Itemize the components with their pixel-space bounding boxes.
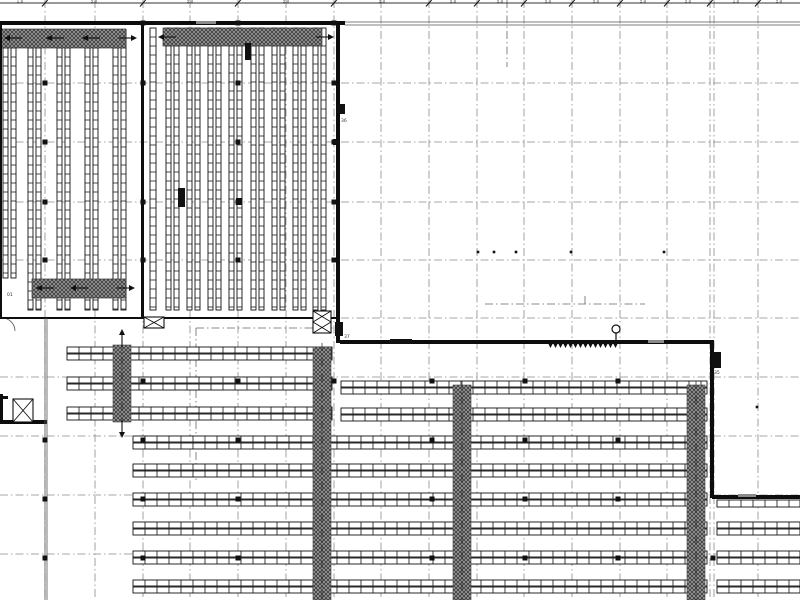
black-door-marker [245,43,251,60]
rack-ladder-outline [208,28,213,310]
dimension-label: 5,0 [187,0,194,4]
hatched-band [32,279,135,298]
rack-row [133,493,707,506]
structural-column-dot [141,21,146,26]
structural-column-dot [236,497,241,502]
rack-ladder-rail [216,28,221,310]
structural-column-dot [430,497,435,502]
rack-ladder-rail [280,28,285,310]
rack-row-rail [717,529,800,535]
rack-ladder-rail [259,28,264,310]
dimension-label: 5,0 [379,0,386,4]
small-dot [756,406,759,409]
rack-ladder-outline [293,28,298,310]
structural-column-dot [430,438,435,443]
rack-ladder-rail [195,28,200,310]
rack-ladder-outline [216,28,221,310]
rack-row-rail [133,464,707,470]
rack-ladder-outline [187,28,192,310]
xbox-frame [313,311,331,333]
dimension-label: 5,0 [283,0,290,4]
structural-column-dot [523,438,528,443]
dimension-label: 5,0 [450,0,457,4]
xbox-symbol [144,317,164,328]
black-door-marker [155,21,179,25]
rack-row-rail [67,354,332,360]
rack-ladder-rail [301,28,306,310]
structural-column-dot [43,497,48,502]
structural-column-dot [332,81,337,86]
rack-ladder-rail [237,28,242,310]
structural-column-dot [43,556,48,561]
dimension-label: 5,0 [545,0,552,4]
rack-ladder-rail [187,28,192,310]
rack-ladder-outline [259,28,264,310]
rack-ladder-rail [85,30,90,310]
gray-wall-label [196,21,216,24]
rack-ladder-rail [57,30,62,310]
dimension-label: 1,0 [733,0,740,4]
rack-row-rail [133,443,707,449]
structural-column-dot [523,497,528,502]
rack-ladder-rail [321,28,326,310]
structural-column-dot [236,379,241,384]
small-dot [663,251,666,254]
rack-ladder-outline [321,28,326,310]
structural-column-dot [43,438,48,443]
rack-row-rail [717,558,800,564]
structural-column-dot [43,81,48,86]
flow-arrow-head [129,285,135,291]
rack-ladder-outline [237,28,242,310]
rack-ladder-outline [313,28,318,310]
black-door-marker [390,339,412,344]
rack-row-rail [133,500,707,506]
rack-ladder-outline [251,28,256,310]
rack-ladder-outline [65,30,70,310]
structural-column-dot [430,556,435,561]
structural-column-dot [236,438,241,443]
rack-row-rail [67,407,332,413]
structural-column-dot [236,556,241,561]
rack-row-rail [717,580,800,586]
wall-block-divider [141,23,144,318]
rack-ladder-rail [166,28,171,310]
rack-ladder-outline [195,28,200,310]
gray-wall-label [738,494,756,497]
rack-ladder-rail [229,28,234,310]
rack-ladder-outline [11,30,16,278]
black-door-marker [712,352,721,368]
dimension-label: 5,0 [776,0,783,4]
structural-column-dot [236,81,241,86]
gate-circle-symbol [612,325,620,333]
rack-row [67,377,332,390]
rack-row-rail [717,587,800,593]
rack-ladder-outline [28,30,33,310]
flow-arrow-head [328,34,334,40]
rack-row-rail [717,500,800,507]
door-marker-label: 36 [341,118,347,124]
annotation-text: 01 [7,292,13,298]
structural-column-dot [616,556,621,561]
rack-ladder-rail [293,28,298,310]
rack-row-rail [133,551,707,557]
rack-ladder-rail [3,30,8,278]
rack-row [133,580,707,593]
vertical-racks-layer [3,28,326,310]
flow-arrow-head [131,35,137,41]
hatched-band-area [163,28,322,46]
rack-row-rail [67,414,332,420]
rack-row [67,407,332,420]
rack-ladder-rail [272,28,277,310]
dimension-label: 5,0 [497,0,504,4]
rack-ladder-outline [85,30,90,310]
rack-ladder-outline [229,28,234,310]
rack-ladder-rail [28,30,33,310]
rack-ladder-rail [174,28,179,310]
dock-layer [548,325,620,348]
dimension-label: 5,0 [640,0,647,4]
flow-arrow-head [158,34,164,40]
floor-plan-viewport: 1,05,05,05,05,05,05,05,05,05,05,01,05,03… [0,0,800,600]
rack-row-rail [67,384,332,390]
rack-row [717,551,800,564]
wall-midblock-east [336,23,340,343]
small-dot [493,251,496,254]
structural-column-dot [711,556,716,561]
rack-ladder-rail [121,30,126,310]
structural-column-dot [236,21,241,26]
structural-column-dot [141,497,146,502]
black-door-marker [335,322,343,336]
dimension-label: 5,0 [593,0,600,4]
rack-row-rail [341,388,707,394]
dimension-label: 1,0 [17,0,24,4]
rack-ladder-outline [174,28,179,310]
structural-column-dot [430,379,435,384]
rack-ladder-rail [150,28,156,310]
structural-column-dot [236,140,241,145]
rack-ladder-rail [313,28,318,310]
rack-row [717,500,800,507]
xbox-symbol [313,311,331,333]
hatched-band [0,29,137,48]
structural-column-dot [236,258,241,263]
tunnel-arrow-up-head [119,329,125,335]
black-door-marker [337,104,345,114]
rack-row [717,522,800,535]
rack-row-rail [717,522,800,528]
dimension-label: 5,0 [685,0,692,4]
rack-ladder-outline [166,28,171,310]
structural-column-dot [141,379,146,384]
rack-row-rail [133,471,707,477]
floor-plan-canvas: 1,05,05,05,05,05,05,05,05,05,05,01,05,03… [0,0,800,600]
rack-row-rail [341,415,707,421]
rack-ladder-outline [121,30,126,310]
structural-column-dot [616,438,621,443]
texts-layer: 01 [7,292,13,298]
structural-column-dot [332,258,337,263]
structural-column-dot [332,379,337,384]
rack-ladder-outline [57,30,62,310]
structural-column-dot [332,200,337,205]
rack-row-rail [133,587,707,593]
rack-row [67,347,332,360]
structural-column-dot [141,438,146,443]
xbox-layer [13,311,331,422]
rack-row [133,522,707,535]
structural-column-dot [141,556,146,561]
structural-column-dot [236,200,241,205]
rack-row-rail [133,529,707,535]
rack-ladder-rail [36,30,41,310]
small-dot [477,251,480,254]
rack-ladder-rail [93,30,98,310]
wall-upper-hall-south [0,317,340,319]
rack-row-rail [717,551,800,557]
rack-ladder-outline [93,30,98,310]
rack-ladder-outline [36,30,41,310]
rack-ladder-outline [301,28,306,310]
dimension-layer: 1,05,05,05,05,05,05,05,05,05,05,01,05,0 [0,0,800,7]
structural-column-dot [141,200,146,205]
rack-row [133,551,707,564]
rack-ladder-outline [272,28,277,310]
door-swing-arc [2,318,15,331]
rack-ladder-outline [113,30,118,310]
small-dot [515,251,518,254]
wall-shaft-west [0,394,3,424]
door-marker-label: 37 [344,334,350,340]
rack-row-rail [133,580,707,586]
rack-row-rail [133,493,707,499]
rack-ladder-outline [150,28,156,310]
structural-column-dot [43,200,48,205]
tunnel-arrow-down-head [119,432,125,438]
hatched-column [687,381,705,600]
structural-column-dot [332,21,337,26]
rack-ladder-rail [11,30,16,278]
structural-column-dot [141,81,146,86]
rack-row-rail [133,558,707,564]
rack-row-rail [67,377,332,383]
structural-column-dot [332,140,337,145]
wall-left [0,23,2,319]
rack-ladder-outline [280,28,285,310]
structural-column-dot [141,258,146,263]
gray-wall-label [648,340,664,343]
rack-row-rail [67,347,332,353]
dimension-label: 5,0 [91,0,98,4]
door-marker-label: 35 [714,370,720,376]
structural-column-dot [43,140,48,145]
structural-column-dot [523,556,528,561]
small-dot [570,251,573,254]
grid-layer [0,0,800,600]
rack-ladder-outline [3,30,8,278]
hatched-column [453,381,471,600]
structural-column-dot [43,258,48,263]
rack-ladder-rail [251,28,256,310]
structural-column-dot [616,497,621,502]
rack-ladder-rail [65,30,70,310]
rack-ladder-rail [113,30,118,310]
rack-row-rail [133,522,707,528]
structural-column-dot [616,379,621,384]
rack-row [133,464,707,477]
rack-row [717,580,800,593]
rack-row-rail [341,408,707,414]
black-door-marker [178,188,185,207]
rack-ladder-rail [208,28,213,310]
rack-row-rail [133,436,707,442]
xbox-symbol [13,399,33,422]
rack-row [133,436,707,449]
structural-column-dot [523,379,528,384]
hatched-column [313,343,331,600]
walls-layer [0,21,800,600]
hatched-column [113,329,131,438]
